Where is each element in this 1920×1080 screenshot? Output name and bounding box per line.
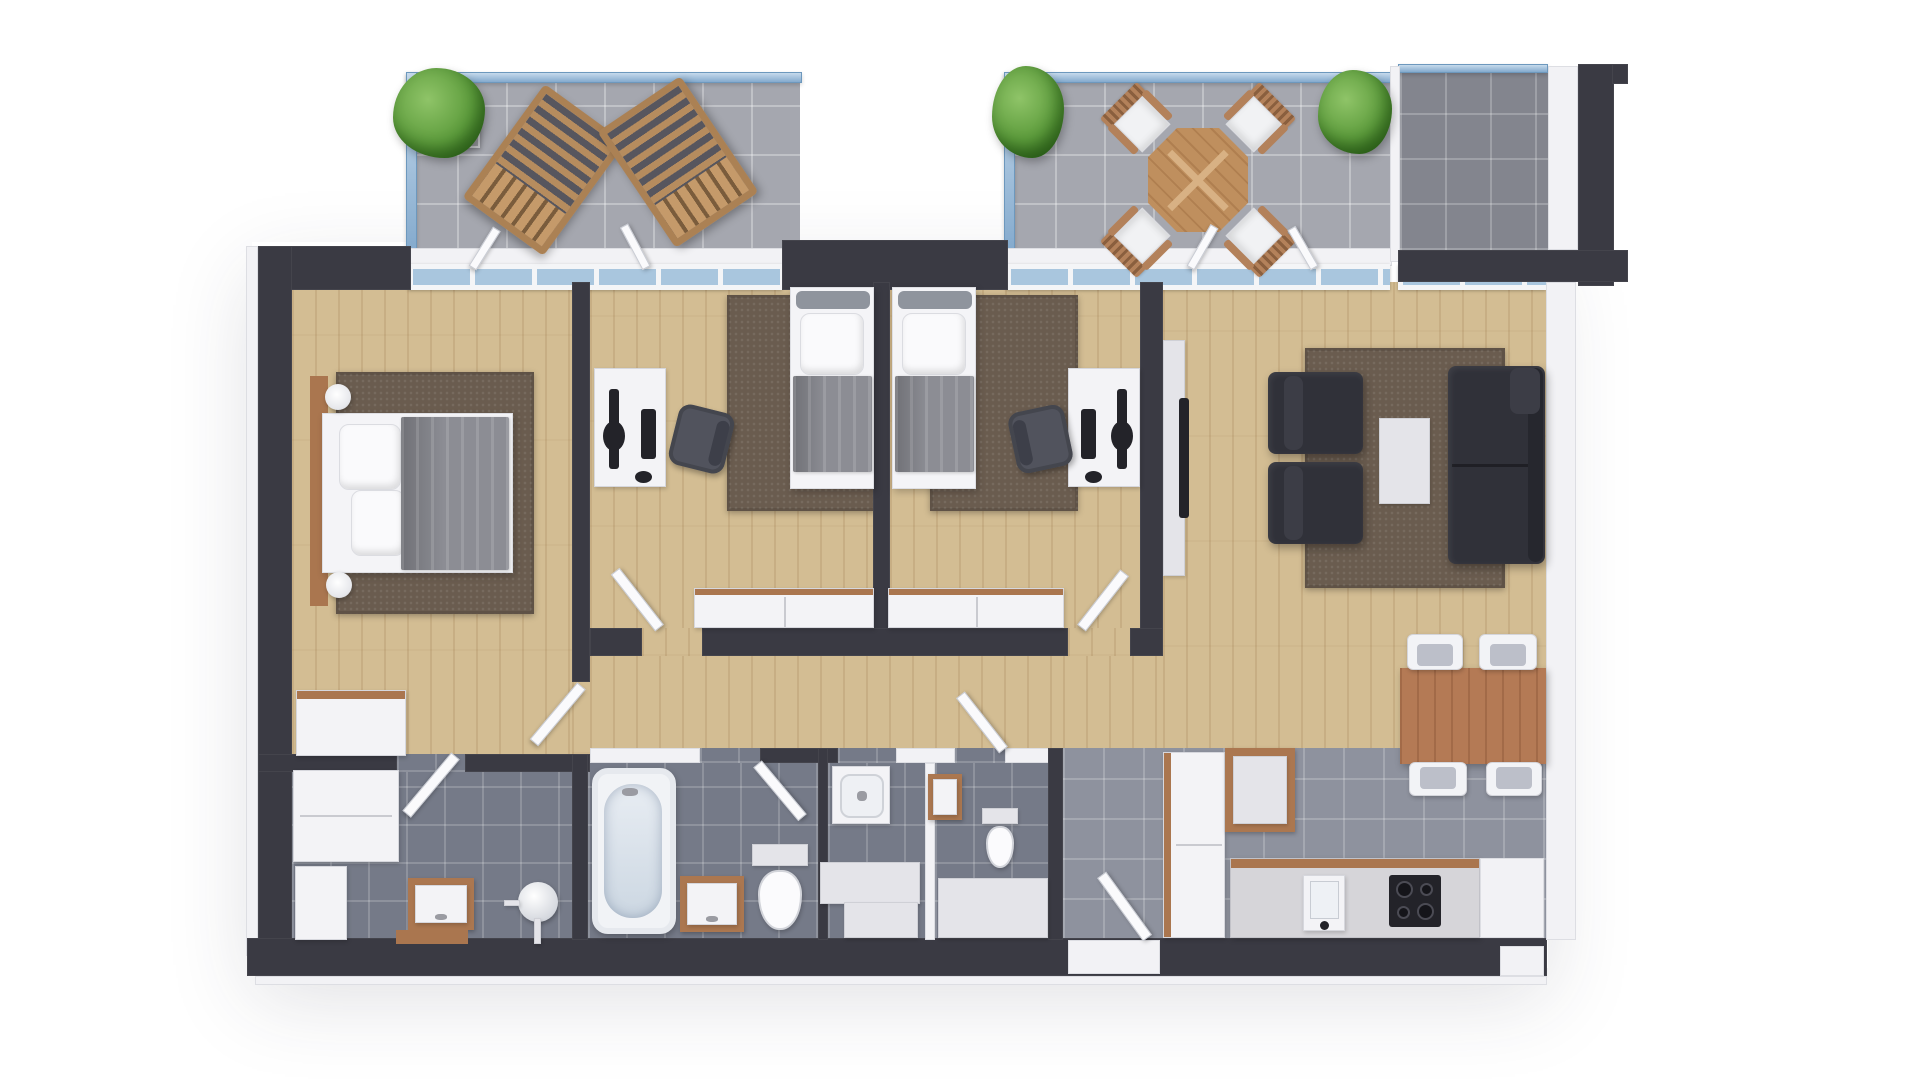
wall-left-face	[246, 246, 258, 956]
window-band-right	[1006, 264, 1390, 290]
cabinet-inner	[933, 779, 957, 815]
cushion	[1490, 644, 1526, 666]
master-dresser	[296, 690, 406, 756]
doorway-shower-room	[838, 748, 896, 763]
dresser-top	[297, 691, 405, 699]
dining-table	[1400, 668, 1546, 764]
blanket	[793, 376, 872, 472]
shower-bench	[820, 862, 920, 904]
plant	[992, 66, 1064, 158]
doorway-bathroom	[700, 748, 760, 763]
burner	[1417, 903, 1434, 920]
nightstand	[325, 384, 351, 410]
tall-cabinet	[1163, 752, 1225, 938]
coffee-table	[1379, 418, 1430, 504]
entry-nook	[1480, 858, 1544, 938]
counter-edge	[1231, 859, 1479, 868]
window-band-left	[408, 264, 782, 290]
bath-mat	[396, 930, 468, 944]
single-bed	[892, 287, 976, 489]
desk-item	[635, 471, 652, 483]
wall-bedrooms-south-1	[590, 628, 642, 656]
desk	[594, 368, 666, 487]
utility-closet	[293, 770, 399, 862]
sofa-bolster	[1510, 368, 1540, 414]
pillow	[351, 490, 405, 556]
dining-chair	[1486, 762, 1542, 796]
burner	[1397, 906, 1410, 919]
utility-cabinet	[295, 866, 347, 940]
shower-head	[518, 882, 558, 922]
wall-right-white	[1546, 282, 1576, 940]
tv	[1179, 398, 1189, 518]
toilet-tank	[752, 844, 808, 866]
doorway-bedroom2	[642, 628, 702, 656]
wall-left	[258, 246, 292, 956]
bath-vanity	[680, 876, 744, 932]
blanket	[895, 376, 974, 472]
terrace-dark-floor	[1400, 66, 1548, 250]
tub-basin	[604, 784, 662, 918]
wall-terrace-divider	[1390, 66, 1400, 262]
tub-faucet	[622, 788, 638, 796]
dining-chair	[1409, 762, 1467, 796]
tv-on-desk	[1111, 421, 1133, 451]
shower-tray	[832, 766, 890, 824]
seam	[300, 815, 392, 817]
drain	[857, 791, 867, 801]
toilet	[748, 844, 812, 936]
sofa	[1448, 366, 1545, 564]
kitchen-counter	[1230, 858, 1480, 938]
toilet-bowl	[986, 826, 1014, 868]
wall-terrace-bottom	[1398, 250, 1628, 282]
cushion	[1496, 767, 1532, 789]
burner	[1396, 881, 1413, 898]
wardrobe-top	[695, 589, 873, 595]
armchair	[1268, 462, 1363, 544]
toilet-bowl	[758, 870, 802, 930]
cushion-seam	[1452, 464, 1528, 467]
handle	[706, 916, 718, 922]
seam	[1176, 844, 1222, 846]
master-bed	[322, 413, 513, 573]
cooktop	[1389, 875, 1441, 927]
wall-right-gap-face	[1548, 66, 1578, 250]
sink	[1303, 875, 1345, 931]
plant	[1318, 70, 1392, 154]
railing-dark-top	[1398, 64, 1548, 73]
headboard	[898, 291, 972, 309]
wall-master-bedroom2	[572, 282, 590, 682]
wall-utility-bathroom	[572, 754, 588, 940]
toilet	[980, 808, 1020, 872]
terrace-table	[1148, 128, 1248, 232]
nightstand	[326, 572, 352, 598]
faucet	[1320, 921, 1329, 930]
armrest	[1284, 376, 1303, 450]
handle	[435, 914, 447, 920]
wall-hall-south-3	[896, 748, 955, 763]
armchair	[1268, 372, 1363, 454]
sink-basin	[1310, 881, 1339, 919]
bath-vanity	[408, 878, 474, 930]
entry-notch	[1500, 946, 1544, 976]
toilet-tank	[982, 808, 1018, 824]
dining-chair	[1407, 634, 1463, 670]
shower-bench	[844, 902, 918, 938]
seam	[784, 597, 786, 627]
pillow	[902, 313, 966, 375]
cushion	[1417, 644, 1453, 666]
cushion	[1420, 767, 1456, 789]
armrest	[1284, 466, 1303, 540]
chair-back	[1012, 419, 1034, 467]
wall-toilet-kitchen	[1048, 748, 1063, 940]
wall-bedrooms-south-3	[1130, 628, 1163, 656]
floorplan-canvas	[0, 0, 1920, 1080]
console-bar	[641, 409, 656, 459]
wall-bedroom3-living	[1140, 282, 1163, 656]
desk-item	[1085, 471, 1102, 483]
kitchen-cabinet	[1225, 748, 1295, 832]
shower-lever	[504, 900, 520, 906]
wall-bedrooms-south-2	[702, 628, 1068, 656]
toilet-counter	[938, 878, 1048, 938]
single-bed	[790, 287, 874, 489]
wall-right-notch-top	[1612, 64, 1628, 84]
headboard	[796, 291, 870, 309]
blanket	[401, 417, 509, 570]
wall-cabinet	[928, 774, 962, 820]
console-bar	[1081, 409, 1096, 459]
wall-bathroom-shower	[818, 748, 828, 940]
seam	[976, 597, 978, 627]
desk	[1068, 368, 1140, 487]
entry-threshold	[1068, 940, 1160, 974]
shower-stand	[534, 918, 541, 944]
wall-top-center	[782, 240, 1008, 290]
doorway-bedroom3	[1068, 628, 1130, 656]
wall-bottom-face	[255, 976, 1547, 985]
burner	[1420, 883, 1433, 896]
wardrobe-top	[889, 589, 1063, 595]
wall-hall-south-1	[590, 748, 700, 763]
cabinet-inner	[1233, 756, 1287, 824]
dining-chair	[1479, 634, 1537, 670]
pillow	[800, 313, 864, 375]
wardrobe	[888, 588, 1064, 628]
tv-on-desk	[603, 421, 625, 451]
bathtub	[592, 768, 676, 934]
plant	[393, 68, 485, 158]
wardrobe	[694, 588, 874, 628]
cabinet-side	[1164, 753, 1171, 937]
pillow	[339, 424, 401, 490]
